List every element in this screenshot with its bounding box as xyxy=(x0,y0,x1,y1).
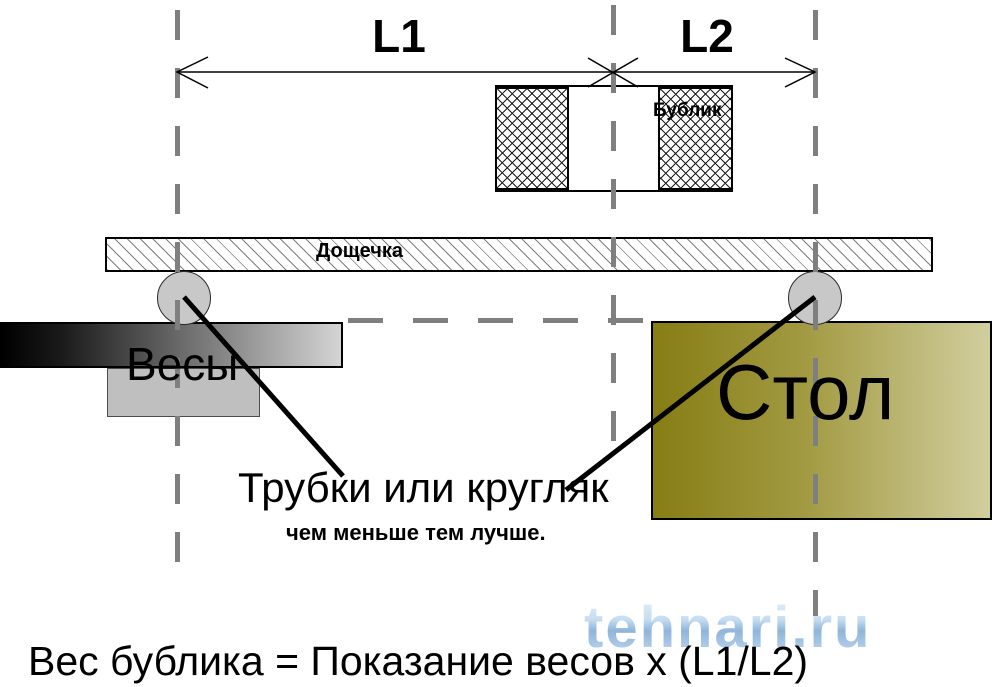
plank-board xyxy=(105,237,933,272)
dashed-axis-right xyxy=(813,10,818,616)
tubes-note: чем меньше тем лучше. xyxy=(286,521,546,544)
scale-label: Весы xyxy=(126,340,238,388)
formula-text: Вес бублика = Показание весов x (L1/L2) xyxy=(28,640,808,683)
arrowhead-left xyxy=(177,57,208,88)
dashed-axis-middle xyxy=(611,5,616,462)
bagel-label: Бублик xyxy=(653,101,722,121)
dimension-label-l2: L2 xyxy=(657,12,757,60)
dashed-level-line xyxy=(348,318,650,323)
arrowhead-right xyxy=(785,58,815,87)
plank-label: Дощечка xyxy=(316,241,403,262)
table-label: Стол xyxy=(716,352,894,434)
bagel-hatch-left xyxy=(495,87,569,190)
lever-weighing-diagram: L1 L2 Бублик Дощечка Весы Стол Трубки ил… xyxy=(0,0,992,687)
dimension-label-l1: L1 xyxy=(349,12,449,60)
tubes-label: Трубки или кругляк xyxy=(238,466,609,510)
dashed-axis-left xyxy=(175,10,180,583)
left-tube-circle xyxy=(157,271,211,325)
